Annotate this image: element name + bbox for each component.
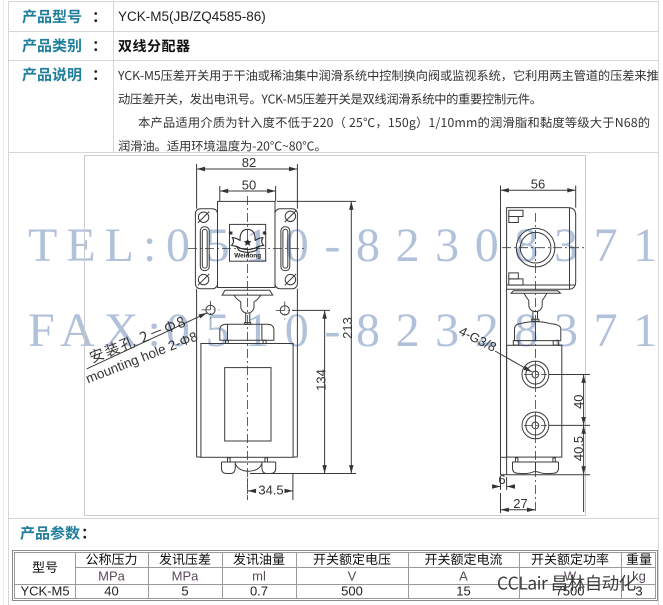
svg-text:V: V (348, 569, 357, 584)
svg-text:40: 40 (571, 394, 586, 408)
svg-text:134: 134 (313, 369, 328, 391)
svg-text:0510-82328371: 0510-82328371 (166, 304, 663, 357)
svg-text:27: 27 (513, 496, 527, 511)
svg-text:MPa: MPa (172, 569, 200, 584)
svg-text:MPa: MPa (98, 569, 126, 584)
svg-text:A: A (459, 569, 468, 584)
svg-text:500: 500 (341, 584, 363, 599)
svg-text:82: 82 (242, 155, 256, 170)
svg-text:40: 40 (104, 584, 118, 599)
svg-text:kg: kg (632, 569, 646, 584)
svg-text:Weidong: Weidong (234, 252, 261, 259)
svg-text:0.7: 0.7 (250, 584, 268, 599)
svg-text:YCK-M5: YCK-M5 (20, 584, 69, 599)
svg-text:3: 3 (635, 584, 642, 599)
svg-text:0510-82308371: 0510-82308371 (166, 219, 663, 272)
svg-text:TEL:: TEL: (28, 219, 165, 272)
svg-text:34.5: 34.5 (258, 482, 283, 497)
svg-text:6: 6 (498, 472, 505, 487)
svg-text:5: 5 (181, 584, 188, 599)
svg-text:56: 56 (531, 177, 545, 192)
svg-text:ml: ml (252, 569, 266, 584)
svg-text:YCK-M5(JB/ZQ4585-86): YCK-M5(JB/ZQ4585-86) (118, 9, 266, 24)
svg-text:50: 50 (242, 178, 256, 193)
svg-text:W: W (564, 569, 577, 584)
svg-text:213: 213 (340, 317, 355, 339)
svg-text:15: 15 (456, 584, 470, 599)
svg-text:40.5: 40.5 (571, 436, 586, 461)
